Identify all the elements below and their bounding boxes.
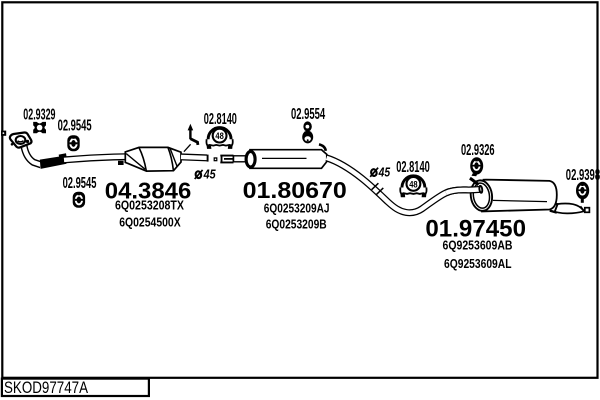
svg-text:6Q0253208TX: 6Q0253208TX xyxy=(115,198,184,213)
svg-text:6Q0253209B: 6Q0253209B xyxy=(266,217,327,232)
svg-text:02.8140: 02.8140 xyxy=(396,159,430,176)
svg-text:6Q9253609AB: 6Q9253609AB xyxy=(443,238,513,253)
svg-text:6Q9253609AL: 6Q9253609AL xyxy=(444,256,512,271)
svg-text:02.8140: 02.8140 xyxy=(204,111,237,128)
svg-text:02.9545: 02.9545 xyxy=(63,175,97,192)
svg-text:02.9554: 02.9554 xyxy=(291,106,325,123)
svg-text:02.9329: 02.9329 xyxy=(23,107,55,124)
svg-text:6Q0254500X: 6Q0254500X xyxy=(119,214,181,229)
svg-text:02.9326: 02.9326 xyxy=(461,142,495,159)
svg-text:45: 45 xyxy=(378,164,391,179)
svg-text:6Q0253209AJ: 6Q0253209AJ xyxy=(264,200,330,215)
svg-text:SKOD97747A: SKOD97747A xyxy=(4,379,88,397)
svg-text:02.9398: 02.9398 xyxy=(566,167,600,184)
svg-text:02.9545: 02.9545 xyxy=(58,117,92,134)
svg-text:01.80670: 01.80670 xyxy=(243,177,347,203)
svg-text:45: 45 xyxy=(203,167,216,182)
